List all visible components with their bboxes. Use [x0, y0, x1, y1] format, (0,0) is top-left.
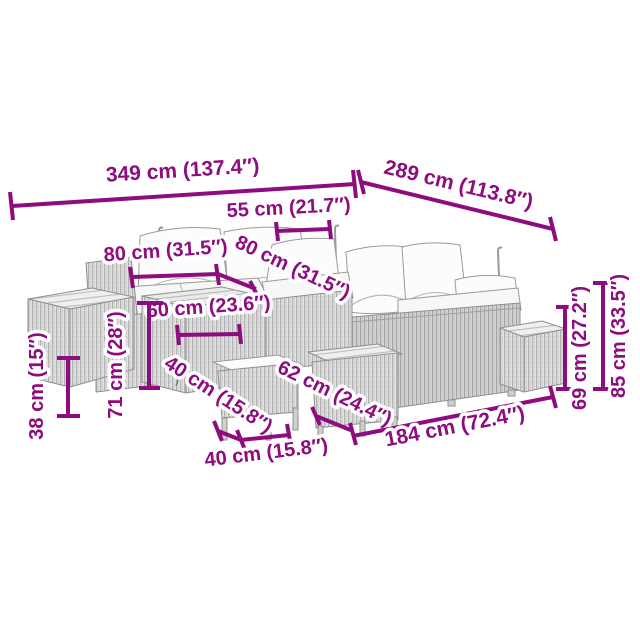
dim-label-back-cushion-width: 55 cm (21.7″)	[226, 194, 351, 222]
sofa-foot	[448, 400, 455, 406]
right-side-table	[500, 321, 566, 392]
dim-label-backrest-height: 69 cm (27.2″)	[569, 286, 591, 410]
sofa-foot	[508, 390, 515, 396]
stool-leg	[222, 418, 227, 440]
dim-label-side-table-height: 38 cm (15″)	[26, 332, 48, 439]
product-dimension-diagram: 349 cm (137.4″) 289 cm (113.8″) 55 cm (2…	[0, 0, 640, 640]
diagram-canvas: 349 cm (137.4″) 289 cm (113.8″) 55 cm (2…	[0, 0, 640, 640]
right-side-table-side	[524, 329, 566, 392]
dim-label-sofa-length: 184 cm (72.4″)	[383, 402, 527, 452]
stool-leg	[293, 408, 298, 430]
right-side-table-front	[500, 328, 524, 392]
dim-label-total-height: 85 cm (33.5″)	[608, 274, 630, 398]
dimension-total-height: 85 cm (33.5″)	[593, 274, 630, 398]
dim-label-sofa-height: 71 cm (28″)	[105, 311, 127, 418]
dimension-overall-depth-right: 289 cm (113.8″)	[358, 156, 556, 241]
dim-label-overall-width-left: 349 cm (137.4″)	[105, 154, 260, 186]
